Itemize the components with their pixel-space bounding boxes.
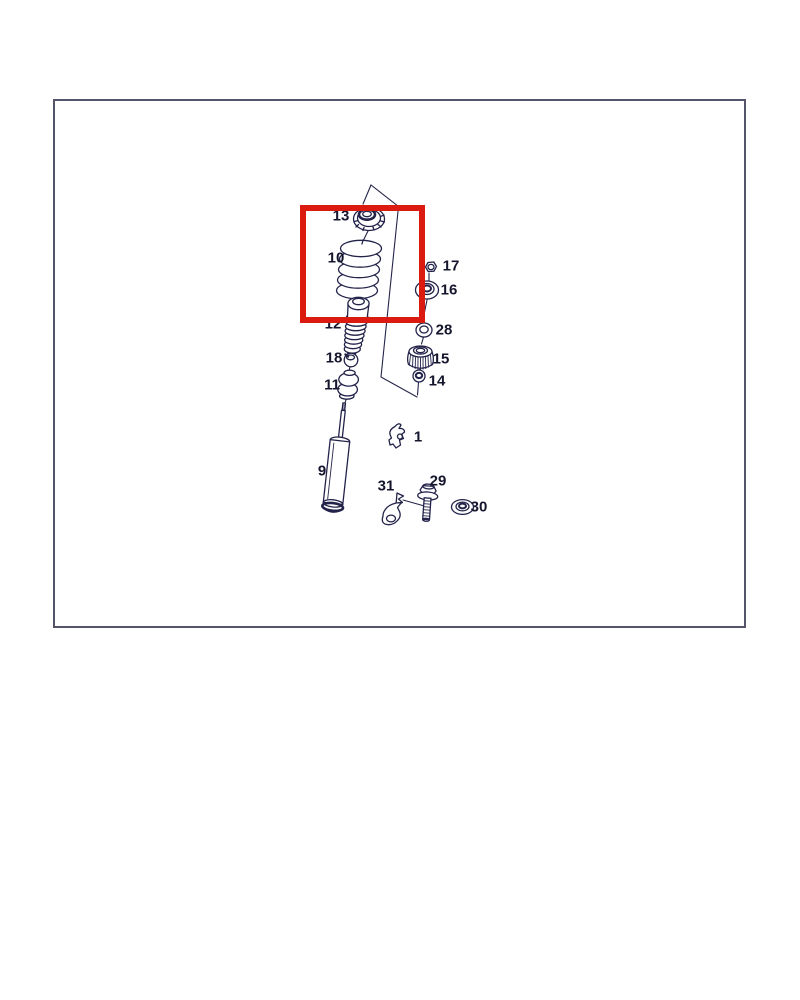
part-17-nut [426,262,437,272]
part-label-11: 11 [324,377,340,394]
part-label-17: 17 [443,258,460,275]
part-label-9: 9 [318,463,326,480]
part-label-15: 15 [433,351,450,368]
part-1-clip [389,424,405,448]
parts-diagram-artwork [0,0,800,1000]
highlight-box [300,205,425,323]
part-18-buffer [344,353,358,367]
part-label-16: 16 [441,282,458,299]
part-label-30: 30 [471,499,488,516]
part-label-28: 28 [436,322,453,339]
part-11-bump-stop [338,370,359,399]
part-14-grommet [413,370,425,382]
part-28-washer [416,323,432,337]
part-9-shock-absorber [322,402,355,513]
part-15-rubber-mount [408,346,434,370]
part-label-18: 18 [326,350,343,367]
part-label-29: 29 [430,473,447,490]
part-label-1: 1 [414,429,422,446]
part-label-31: 31 [378,478,395,495]
part-label-14: 14 [429,373,446,390]
